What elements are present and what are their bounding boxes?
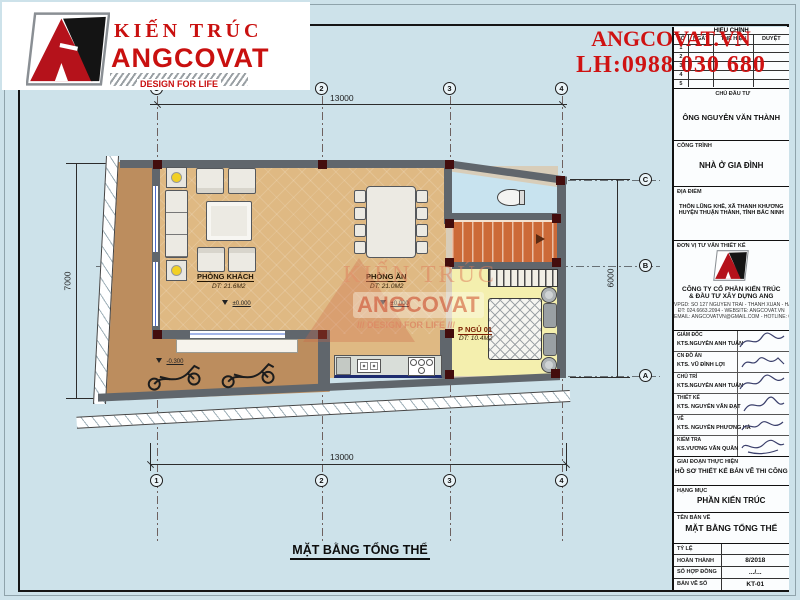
location-section: ĐỊA ĐIỂM THÔN LŨNG KHÊ, XÃ THANH KHƯƠNG … xyxy=(674,187,789,241)
watermark-text-top: KIẾN TRÚC xyxy=(343,262,497,289)
window-living-garage xyxy=(190,331,285,338)
brand-tagline-band: DESIGN FOR LIFE xyxy=(110,73,248,86)
dim-value-right: 6000 xyxy=(605,269,615,288)
signature-row: CN ĐỒ ÁNKTS. VŨ ĐÌNH LỢI xyxy=(674,352,789,373)
living-room-level: ±0.000 xyxy=(222,292,251,310)
garage-level: -0.300 xyxy=(156,350,183,368)
location-label: ĐỊA ĐIỂM xyxy=(674,187,789,195)
client-value: ÔNG NGUYỄN VĂN THÀNH xyxy=(674,113,789,122)
dim-line-bottom xyxy=(150,464,567,465)
grid-bubble-col-2-top: 2 xyxy=(315,82,328,95)
consultant-section: ĐƠN VỊ TƯ VẤN THIẾT KẾ CÔNG TY CỔ PHẦN K… xyxy=(674,241,789,331)
sofa-icon xyxy=(165,190,188,258)
dim-line-top xyxy=(150,104,567,105)
armchair-icon xyxy=(228,247,256,272)
bed-pillow xyxy=(543,303,557,328)
signature-scribble xyxy=(738,373,786,393)
column xyxy=(445,160,454,169)
signature-scribble xyxy=(738,394,786,414)
dim-extension xyxy=(150,443,151,471)
watermark-text-tagline: /// DESIGN FOR LIFE /// xyxy=(357,320,455,330)
grid-bubble-row-A: A xyxy=(639,369,652,382)
column xyxy=(552,258,561,267)
wall-dining-hall xyxy=(444,166,452,224)
consultant-logo-icon xyxy=(674,250,789,286)
sheet-name-value: MẶT BẰNG TỔNG THỂ xyxy=(674,523,789,533)
living-room-area: DT: 21.6M2 xyxy=(212,283,245,290)
consultant-contact3: EMAIL: ANGCOVATVN@GMAIL.COM - HOTLINE: 0… xyxy=(674,314,789,320)
category-value: PHẦN KIẾN TRÚC xyxy=(674,496,789,505)
column xyxy=(318,160,327,169)
sheet-name-section: TÊN BẢN VẼ MẶT BẰNG TỔNG THỂ xyxy=(674,513,789,544)
column xyxy=(153,160,162,169)
title-block: HIỆU CHỈNH SỐ NGÀY THỂ HIỆN DUYỆT 1 2 3 … xyxy=(672,27,789,590)
consultant-contact1: VPGD: SỐ 127 NGUYỄN TRÃI - THANH XUÂN - … xyxy=(674,302,789,308)
consultant-contact2: ĐT: 024.6663.2094 - WEBSITE: ANGCOVAT.VN xyxy=(674,308,789,314)
stair-direction-arrow xyxy=(536,234,545,244)
column xyxy=(551,369,560,378)
brand-main-text: ANGCOVAT xyxy=(111,43,270,74)
dim-value-left: 7000 xyxy=(62,272,72,291)
column xyxy=(445,219,454,228)
client-section: CHỦ ĐẦU TƯ ÔNG NGUYỄN VĂN THÀNH xyxy=(674,89,789,141)
location-line2: HUYỆN THUẬN THÀNH, TỈNH BẮC NINH xyxy=(674,210,789,216)
signature-row: GIÁM ĐỐCKTS.NGUYỄN ANH TUẤN xyxy=(674,331,789,352)
floor-lamp-icon xyxy=(166,167,187,188)
dining-chair-icon xyxy=(416,207,428,220)
consultant-label: ĐƠN VỊ TƯ VẤN THIẾT KẾ xyxy=(674,241,789,249)
stove-icon xyxy=(408,357,435,376)
grid-bubble-col-2-bottom: 2 xyxy=(315,474,328,487)
watermark: KIẾN TRÚC ANGCOVAT /// DESIGN FOR LIFE /… xyxy=(295,252,495,347)
window-left xyxy=(153,262,158,326)
grid-bubble-col-3-bottom: 3 xyxy=(443,474,456,487)
kitchen-cabinet xyxy=(336,357,351,375)
brand-tagline-text: DESIGN FOR LIFE xyxy=(137,79,221,89)
dim-value-top: 13000 xyxy=(330,93,354,103)
dining-chair-icon xyxy=(416,224,428,237)
project-value: NHÀ Ở GIA ĐÌNH xyxy=(674,161,789,170)
armchair-icon xyxy=(196,168,224,194)
footer-row: SỐ HỢP ĐỒNG.../... xyxy=(674,566,789,578)
sheet-footer: TỶ LỆ HOÀN THÀNH8/2018 SỐ HỢP ĐỒNG.../..… xyxy=(674,544,789,590)
column xyxy=(153,330,162,339)
column xyxy=(445,370,454,379)
signature-row: CHỦ TRÌKTS.NGUYỄN ANH TUẤN xyxy=(674,373,789,394)
kitchen-sink-icon xyxy=(357,359,381,373)
dining-chair-icon xyxy=(354,190,366,203)
column xyxy=(552,214,561,223)
dim-line-left xyxy=(76,163,77,399)
signature-scribble xyxy=(738,415,786,435)
dim-extension xyxy=(566,443,567,471)
dim-extension xyxy=(570,377,630,378)
client-label: CHỦ ĐẦU TƯ xyxy=(674,89,789,97)
bed-icon xyxy=(488,298,542,360)
signature-row: KIỂM TRAKS.VƯƠNG VĂN QUÂN xyxy=(674,436,789,457)
coffee-table-icon xyxy=(206,201,252,241)
signature-scribble xyxy=(738,436,786,457)
header-phone: LH:0988 030 680 xyxy=(556,52,786,79)
grid-bubble-col-1-bottom: 1 xyxy=(150,474,163,487)
dining-table-icon xyxy=(366,186,416,258)
motorbike-icon xyxy=(217,359,280,394)
porch-step xyxy=(176,339,298,353)
dim-line-right xyxy=(617,179,618,377)
header-website: ANGCOVAT.VN xyxy=(556,26,786,52)
dim-extension xyxy=(570,179,630,180)
armchair-icon xyxy=(228,168,256,194)
wall-top-right-slanted xyxy=(450,158,567,188)
company-logo-icon xyxy=(26,12,110,91)
column xyxy=(556,176,565,185)
dining-chair-icon xyxy=(354,207,366,220)
dining-chair-icon xyxy=(416,190,428,203)
phase-section: GIAI ĐOẠN THỰC HIỆN HỒ SƠ THIẾT KẾ BẢN V… xyxy=(674,457,789,486)
header-contact: ANGCOVAT.VN LH:0988 030 680 xyxy=(556,26,786,79)
dim-value-bottom: 13000 xyxy=(330,452,354,462)
phase-value: HỒ SƠ THIẾT KẾ BẢN VẼ THI CÔNG xyxy=(674,468,789,475)
brand-top-text: KIẾN TRÚC xyxy=(114,20,262,43)
sheet-name-label: TÊN BẢN VẼ xyxy=(674,513,789,521)
wall-right xyxy=(557,177,566,378)
wall-wc-bottom xyxy=(452,213,558,220)
footer-row: BẢN VẼ SỐKT-01 xyxy=(674,578,789,590)
consultant-company-line2: & ĐẦU TƯ XÂY DỰNG ANG xyxy=(674,293,789,300)
grid-bubble-row-B: B xyxy=(639,259,652,272)
toilet-tank xyxy=(519,190,525,205)
project-section: CÔNG TRÌNH NHÀ Ở GIA ĐÌNH xyxy=(674,141,789,187)
signature-row: VẼKTS. NGUYỄN PHƯƠNG HÀ xyxy=(674,415,789,436)
signature-scribble xyxy=(738,331,786,351)
footer-row: TỶ LỆ xyxy=(674,544,789,555)
grid-bubble-col-4-top: 4 xyxy=(555,82,568,95)
armchair-icon xyxy=(197,247,225,272)
footer-row: HOÀN THÀNH8/2018 xyxy=(674,554,789,566)
grid-bubble-row-C: C xyxy=(639,173,652,186)
signature-scribble xyxy=(738,352,786,372)
grid-bubble-col-4-bottom: 4 xyxy=(555,474,568,487)
phase-label: GIAI ĐOẠN THỰC HIỆN xyxy=(674,457,789,465)
drawing-sheet: 13000 13000 7000 6000 1 2 3 4 1 2 3 4 C … xyxy=(0,0,800,600)
consultant-company-line1: CÔNG TY CỔ PHẦN KIẾN TRÚC xyxy=(674,286,789,293)
category-label: HẠNG MỤC xyxy=(674,486,789,494)
location-line1: THÔN LŨNG KHÊ, XÃ THANH KHƯƠNG xyxy=(674,204,789,210)
logo-block: KIẾN TRÚC ANGCOVAT DESIGN FOR LIFE xyxy=(2,2,310,90)
nightstand-icon xyxy=(541,287,557,303)
grid-bubble-col-3-top: 3 xyxy=(443,82,456,95)
drawing-title: MẶT BẰNG TỔNG THỂ xyxy=(270,541,450,559)
floor-lamp-icon xyxy=(166,260,187,281)
bed-pillow xyxy=(543,333,557,356)
dining-chair-icon xyxy=(354,224,366,237)
wardrobe-icon xyxy=(488,269,558,287)
signature-row: THIẾT KẾKTS. NGUYỄN VĂN ĐẠT xyxy=(674,394,789,415)
category-section: HẠNG MỤC PHẦN KIẾN TRÚC xyxy=(674,486,789,513)
signatures-section: GIÁM ĐỐCKTS.NGUYỄN ANH TUẤN CN ĐỒ ÁNKTS.… xyxy=(674,331,789,457)
living-room-label: PHÒNG KHÁCH xyxy=(197,272,254,282)
watermark-text-main: ANGCOVAT xyxy=(353,292,484,318)
project-label: CÔNG TRÌNH xyxy=(674,141,789,149)
window-left xyxy=(153,186,158,252)
